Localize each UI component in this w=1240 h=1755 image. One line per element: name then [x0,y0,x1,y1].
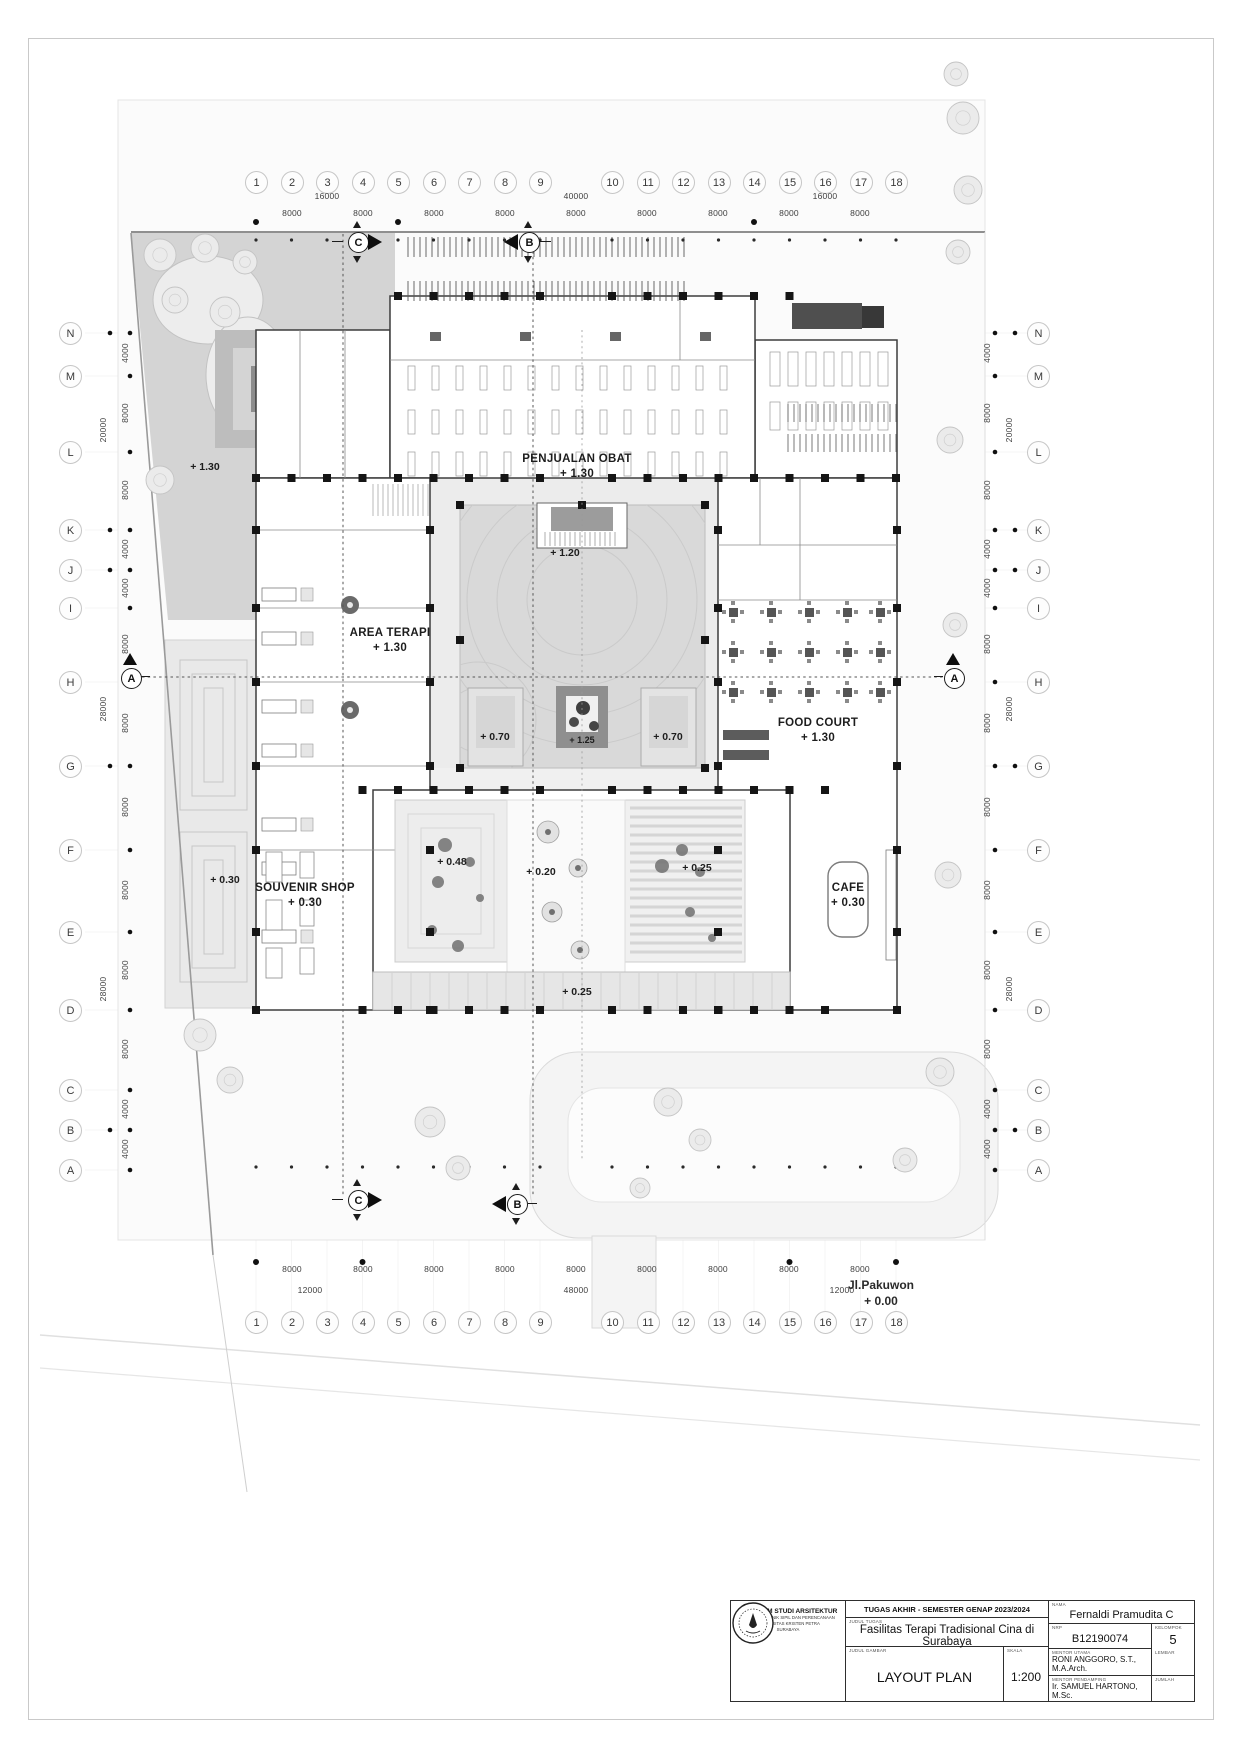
level-label-center-planter: + 1.25 [569,735,594,745]
dimension-label: 8000 [561,208,591,218]
grid-bubble: 6 [423,171,446,194]
dimension-label: 16000 [810,191,840,201]
grid-bubble: 15 [779,171,802,194]
grid-bubble: 18 [885,1311,908,1334]
section-marker-b-top: B [519,232,540,253]
section-c-bottom-arrow-icon [368,1192,382,1208]
section-a-right-arrow-icon [946,653,960,665]
skala-value: 1:200 [1007,1653,1045,1700]
titleblock-judul-tugas-cell: JUDUL TUGAS Fasilitas Terapi Tradisional… [846,1618,1048,1647]
titleblock-skala-cell: SKALA 1:200 [1004,1647,1048,1701]
grid-bubble: F [59,839,82,862]
dimension-label: 4000 [120,534,130,564]
dimension-label: 8000 [120,955,130,985]
dimension-label: 4000 [982,1094,992,1124]
grid-bubble: 9 [529,171,552,194]
grid-bubble: 11 [637,171,660,194]
jumlah-label: JUMLAH [1155,1677,1191,1682]
grid-bubble: B [59,1119,82,1142]
judul-gambar-value: LAYOUT PLAN [849,1653,1000,1700]
grid-bubble: I [59,597,82,620]
grid-bubble: 11 [637,1311,660,1334]
dimension-label: 8000 [982,708,992,738]
grid-bubble: 2 [281,1311,304,1334]
dimension-label: 4000 [120,573,130,603]
dimension-label: 16000 [312,191,342,201]
grid-bubble: 17 [850,1311,873,1334]
section-b-bottom-flag-icon [512,1183,520,1190]
titleblock-jumlah-cell: JUMLAH [1152,1676,1194,1702]
dimension-label: 8000 [774,1264,804,1274]
grid-bubble: 10 [601,171,624,194]
grid-bubble: I [1027,597,1050,620]
dimension-label: 8000 [120,708,130,738]
dimension-label: 8000 [120,398,130,428]
section-a-left-tick [141,676,150,677]
grid-bubble: 1 [245,171,268,194]
truck [792,303,884,329]
dimension-label: 4000 [982,573,992,603]
grid-bubble: 8 [494,171,517,194]
dimension-label: 4000 [982,1134,992,1164]
titleblock-mentor-pendamping-cell: MENTOR PENDAMPING Ir. SAMUEL HARTONO, M.… [1049,1676,1151,1702]
grid-bubble: 10 [601,1311,624,1334]
grid-bubble: 13 [708,171,731,194]
grid-bubble: 4 [352,1311,375,1334]
west-garden [165,640,262,1008]
nama-value: Fernaldi Pramudita C [1052,1607,1191,1622]
dropoff-road [530,1052,998,1328]
grid-bubble: 5 [387,1311,410,1334]
dimension-label: 8000 [982,398,992,428]
dimension-label: 8000 [490,208,520,218]
nrp-value: B12190074 [1052,1630,1148,1647]
grid-bubble: K [1027,519,1050,542]
dimension-label: 8000 [982,955,992,985]
grid-bubble: J [1027,559,1050,582]
mentor-utama-value: RONI ANGGORO, S.T., M.A.Arch. [1052,1655,1148,1674]
grid-bubble: A [1027,1159,1050,1182]
dimension-label: 8000 [774,208,804,218]
grid-bubble: E [1027,921,1050,944]
titleblock-nrp-cell: NRP B12190074 [1049,1624,1152,1649]
titleblock-mentor-utama-cell: MENTOR UTAMA RONI ANGGORO, S.T., M.A.Arc… [1049,1649,1151,1676]
level-label-garden-west: + 0.30 [210,874,240,886]
grid-bubble: F [1027,839,1050,862]
level-label-garden-south-left: + 0.48 [437,856,467,868]
section-c-top-flag-icon [353,256,361,263]
grid-bubble: 5 [387,171,410,194]
lembar-label: LEMBAR [1155,1650,1191,1655]
titleblock-header: TUGAS AKHIR - SEMESTER GENAP 2023/2024 [846,1601,1048,1618]
judul-tugas-value: Fasilitas Terapi Tradisional Cina di Sur… [849,1624,1045,1648]
section-b-bottom-tick [528,1203,537,1204]
title-block-logo-cell: PROGRAM STUDI ARSITEKTUR FAKULTAS TEKNIK… [731,1601,846,1701]
grid-bubble: D [1027,999,1050,1022]
grid-bubble: 7 [458,1311,481,1334]
dimension-label: 8000 [120,875,130,905]
section-b-top-flag-icon [524,256,532,263]
level-label-garden-south-right: + 0.25 [682,862,712,874]
grid-bubble: N [1027,322,1050,345]
grid-bubble: N [59,322,82,345]
dimension-label: 8000 [120,792,130,822]
dimension-label: 48000 [561,1285,591,1295]
level-label-south-walkway: + 0.25 [562,986,592,998]
grid-bubble: 13 [708,1311,731,1334]
room-label-food-court: FOOD COURT+ 1.30 [778,716,858,746]
street-jl-pakuwon [40,1335,1200,1460]
titleblock-city: SURABAYA [777,1627,800,1633]
section-a-right-tick [934,676,943,677]
section-b-bottom-flag-icon [512,1218,520,1225]
grid-bubble: 17 [850,171,873,194]
grid-bubble: 4 [352,171,375,194]
room-label-area-terapi: AREA TERAPI+ 1.30 [350,626,431,656]
title-block: PROGRAM STUDI ARSITEKTUR FAKULTAS TEKNIK… [730,1600,1195,1702]
section-marker-a-right: A [944,668,965,689]
dimension-label: 8000 [982,875,992,905]
section-b-top-arrow-icon [504,234,518,250]
dimension-label: 8000 [348,1264,378,1274]
grid-bubble: E [59,921,82,944]
section-marker-c-top: C [348,232,369,253]
dimension-label: 8000 [490,1264,520,1274]
grid-bubble: 18 [885,171,908,194]
dimension-label: 20000 [1004,415,1014,445]
dimension-label: 8000 [982,475,992,505]
grid-bubble: C [59,1079,82,1102]
dimension-label: 4000 [120,1134,130,1164]
dimension-label: 8000 [561,1264,591,1274]
dimension-label: 8000 [982,792,992,822]
dimension-label: 8000 [632,208,662,218]
dimension-label: 8000 [348,208,378,218]
grid-bubble: 14 [743,171,766,194]
level-label-entry-plaza: + 1.20 [550,547,580,559]
dimension-label: 8000 [982,629,992,659]
section-b-top-tick [540,241,551,242]
grid-bubble: 6 [423,1311,446,1334]
dimension-label: 4000 [120,338,130,368]
grid-bubble: H [59,671,82,694]
titleblock-judul-gambar-cell: JUDUL GAMBAR LAYOUT PLAN [846,1647,1004,1701]
section-c-bottom-flag-icon [353,1214,361,1221]
dimension-label: 40000 [561,191,591,201]
grid-bubble: B [1027,1119,1050,1142]
south-gardens [373,800,790,1010]
grid-bubble: C [1027,1079,1050,1102]
dimension-label: 8000 [277,1264,307,1274]
grid-bubble: 14 [743,1311,766,1334]
dimension-label: 8000 [845,208,875,218]
section-c-top-tick [332,241,343,242]
mentor-pendamping-value: Ir. SAMUEL HARTONO, M.Sc. [1052,1682,1148,1701]
dimension-label: 28000 [98,974,108,1004]
dimension-label: 8000 [632,1264,662,1274]
kelompok-value: 5 [1155,1630,1191,1648]
room-label-souvenir-shop: SOUVENIR SHOP+ 0.30 [255,881,355,911]
entry-plaza [430,478,718,505]
dimension-label: 8000 [277,208,307,218]
grid-bubble: 2 [281,171,304,194]
dimension-label: 8000 [703,208,733,218]
section-c-bottom-tick [332,1199,343,1200]
section-a-left-arrow-icon [123,653,137,665]
grid-bubble: A [59,1159,82,1182]
northwest-block [256,330,390,478]
room-label-cafe: CAFE+ 0.30 [831,881,865,911]
section-c-top-flag-icon [353,221,361,228]
titleblock-nama-cell: NAMA Fernaldi Pramudita C [1049,1601,1194,1624]
grid-bubble: 9 [529,1311,552,1334]
dimension-label: 8000 [845,1264,875,1274]
level-label-planter-left: + 0.70 [480,731,510,743]
dimension-label: 8000 [120,1034,130,1064]
section-marker-a-left: A [121,668,142,689]
grid-bubble: 3 [316,1311,339,1334]
grid-bubble: 1 [245,1311,268,1334]
dimension-label: 20000 [98,415,108,445]
dimension-label: 28000 [1004,974,1014,1004]
layout-plan-sheet: 123456789101112131415161718 123456789101… [0,0,1240,1755]
room-label-penjualan-obat: PENJUALAN OBAT+ 1.30 [522,452,631,482]
level-label-planter-right: + 0.70 [653,731,683,743]
grid-bubble: H [1027,671,1050,694]
grid-bubble: J [59,559,82,582]
dimension-label: 4000 [120,1094,130,1124]
grid-bubble: 15 [779,1311,802,1334]
grid-bubble: M [59,365,82,388]
dimension-label: 4000 [982,338,992,368]
grid-bubble: M [1027,365,1050,388]
grid-bubble: 8 [494,1311,517,1334]
dimension-label: 4000 [982,534,992,564]
grid-bubble: D [59,999,82,1022]
titleblock-lembar-cell: LEMBAR [1152,1649,1194,1676]
section-b-bottom-arrow-icon [492,1196,506,1212]
level-label-ramp: + 0.20 [526,866,556,878]
grid-bubble: 16 [814,1311,837,1334]
dimension-label: 8000 [120,475,130,505]
university-seal-icon [731,1601,775,1645]
grid-bubble: G [1027,755,1050,778]
section-c-top-arrow-icon [368,234,382,250]
dimension-label: 8000 [982,1034,992,1064]
street-label-jl-pakuwon: Jl.Pakuwon+ 0.00 [848,1277,914,1309]
grid-bubble: L [1027,441,1050,464]
section-b-top-flag-icon [524,221,532,228]
titleblock-kelompok-cell: KELOMPOK 5 [1152,1624,1194,1649]
section-marker-b-bottom: B [507,1194,528,1215]
dimension-label: 28000 [98,694,108,724]
dimension-label: 12000 [295,1285,325,1295]
grid-bubble: K [59,519,82,542]
dimension-label: 8000 [419,208,449,218]
section-c-bottom-flag-icon [353,1179,361,1186]
level-label-garden-northwest: + 1.30 [190,461,220,473]
dimension-label: 8000 [419,1264,449,1274]
grid-bubble: 12 [672,1311,695,1334]
dimension-label: 8000 [703,1264,733,1274]
grid-bubble: L [59,441,82,464]
grid-bubble: 12 [672,171,695,194]
dimension-label: 28000 [1004,694,1014,724]
section-marker-c-bottom: C [348,1190,369,1211]
grid-bubble: 7 [458,171,481,194]
grid-bubble: G [59,755,82,778]
floor-plan-drawing [0,0,1240,1755]
